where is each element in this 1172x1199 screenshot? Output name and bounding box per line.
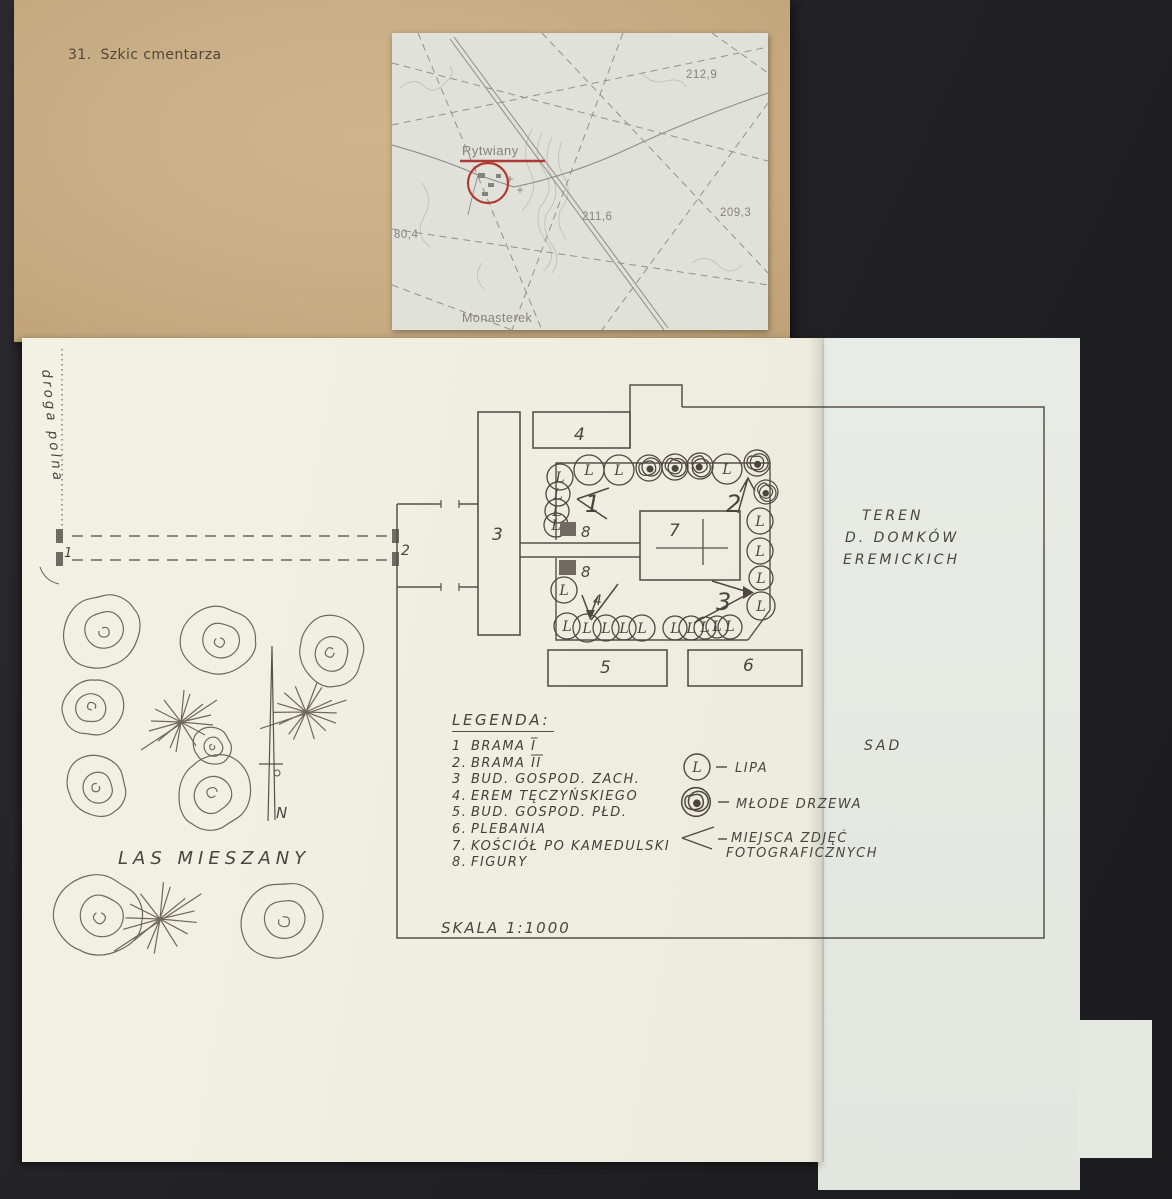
svg-text:L: L (581, 621, 591, 637)
building-7-label: 7 (669, 521, 680, 541)
scanned-archive-page: 31.Szkic cmentarza (0, 0, 1172, 1199)
building-3 (478, 412, 520, 635)
svg-text:L: L (691, 760, 701, 776)
north-label: N (276, 804, 287, 822)
church-cross (656, 519, 728, 565)
legend-young-tree-symbol (679, 785, 712, 818)
photo-label-2: 2 (726, 490, 741, 518)
svg-text:L: L (583, 463, 593, 479)
svg-text:L: L (754, 544, 764, 560)
svg-text:L: L (721, 462, 731, 478)
legend-item: 6.PLEBANIA (452, 822, 670, 839)
legend-item: 7.KOŚCIÓŁ PO KAMEDULSKI (452, 839, 670, 856)
svg-text:L: L (699, 620, 709, 636)
building-5-label: 5 (600, 658, 611, 678)
site-plan-overlay: droga polna 1 2 3 (0, 0, 1172, 1199)
figures: 8 8 (559, 522, 591, 581)
photo-label-1: 1 (585, 490, 600, 518)
svg-text:L: L (669, 621, 679, 637)
field-road (40, 349, 389, 584)
scale-label: SKALA 1:1000 (441, 919, 571, 937)
field-road-label: droga polna (38, 369, 66, 484)
photo-label-4: 4 (593, 593, 602, 609)
svg-text:L: L (618, 621, 628, 637)
area-label-line2: D. DOMKÓW (845, 528, 959, 546)
legend-item: 4.EREM TĘCZYŃSKIEGO (452, 789, 670, 806)
svg-text:L: L (600, 621, 610, 637)
legend-title: LEGENDA: (452, 711, 554, 732)
plan-buildings (478, 412, 802, 686)
legend-item: 2.BRAMA I̅I̅ (452, 756, 670, 773)
svg-text:L: L (554, 470, 564, 486)
gate-2: 2 (392, 529, 410, 566)
building-4-label: 4 (574, 425, 585, 445)
forest-trees (39, 591, 377, 975)
area-label-line1: TEREN (862, 508, 923, 524)
building-7-church (640, 511, 740, 580)
building-3-label: 3 (492, 525, 503, 545)
legend-symbol-photo-label2: FOTOGRAFICZNYCH (726, 846, 878, 861)
legend-symbols (679, 754, 729, 849)
svg-text:L: L (724, 619, 734, 635)
svg-text:L: L (755, 571, 765, 587)
svg-text:L: L (550, 518, 560, 534)
svg-text:L: L (754, 514, 764, 530)
gate-2-label: 2 (401, 543, 410, 559)
legend-symbol-photo-label: MIEJSCA ZDJĘĆ (731, 830, 848, 846)
legend-photo-arrow-symbol (682, 827, 714, 849)
svg-text:L: L (613, 463, 623, 479)
legend-item: 1BRAMA I̅ (452, 739, 670, 756)
svg-text:L: L (558, 583, 568, 599)
young-tree-symbols (636, 446, 782, 508)
svg-text:L: L (711, 619, 721, 635)
svg-text:L: L (561, 619, 571, 635)
figure-label-b: 8 (581, 563, 591, 581)
legend-item: 3BUD. GOSPOD. ZACH. (452, 772, 670, 789)
figure-label-a: 8 (581, 523, 591, 541)
area-label-line3: EREMICKICH (843, 552, 960, 568)
legend-item: 8.FIGURY (452, 855, 670, 872)
legend: LEGENDA: 1BRAMA I̅ 2.BRAMA I̅I̅ 3BUD. GO… (452, 710, 670, 872)
north-arrow (259, 646, 283, 821)
photo-label-3: 3 (716, 588, 731, 616)
legend-symbol-lipa-label: LIPA (735, 761, 768, 776)
orchard-label: SAD (864, 738, 902, 754)
legend-items: 1BRAMA I̅ 2.BRAMA I̅I̅ 3BUD. GOSPOD. ZAC… (452, 739, 670, 872)
svg-text:L: L (755, 599, 765, 615)
svg-text:L: L (636, 621, 646, 637)
svg-text:L: L (552, 487, 562, 503)
forest-label: LAS MIESZANY (118, 848, 310, 869)
building-6-label: 6 (743, 656, 754, 676)
gate-1: 1 (56, 529, 72, 566)
lipa-letters: LL LL LL L LL LL L LL LL L LL LL L (550, 462, 765, 637)
svg-text:L: L (685, 621, 695, 637)
gate-1-label: 1 (64, 546, 72, 561)
legend-item: 5.BUD. GOSPOD. PŁD. (452, 805, 670, 822)
legend-symbol-young-trees-label: MŁODE DRZEWA (736, 797, 862, 812)
